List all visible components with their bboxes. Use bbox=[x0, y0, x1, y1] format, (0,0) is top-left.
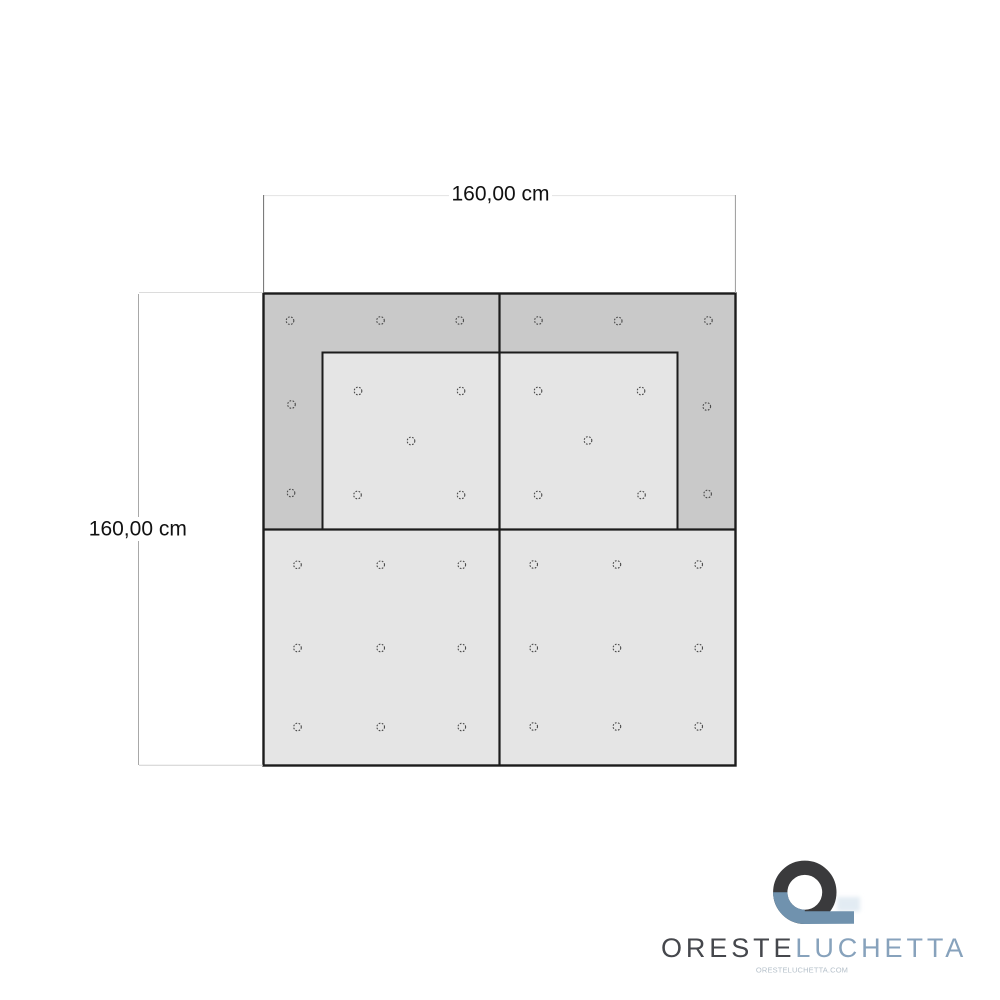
svg-text:160,00 cm: 160,00 cm bbox=[89, 518, 187, 541]
svg-text:ORESTELUCHETTA.COM: ORESTELUCHETTA.COM bbox=[756, 965, 848, 974]
svg-text:160,00 cm: 160,00 cm bbox=[451, 182, 549, 205]
svg-text:ORESTELUCHETTA: ORESTELUCHETTA bbox=[661, 933, 967, 963]
